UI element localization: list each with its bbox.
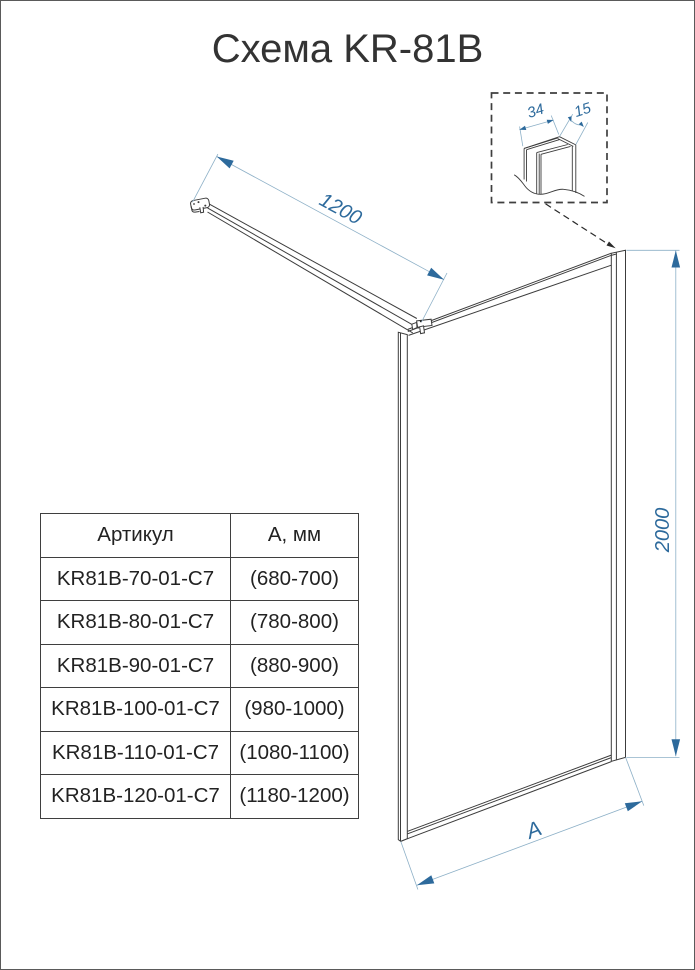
svg-text:2000: 2000: [652, 508, 674, 554]
svg-text:15: 15: [572, 99, 594, 121]
svg-text:A: A: [521, 816, 545, 844]
svg-text:34: 34: [525, 101, 546, 122]
